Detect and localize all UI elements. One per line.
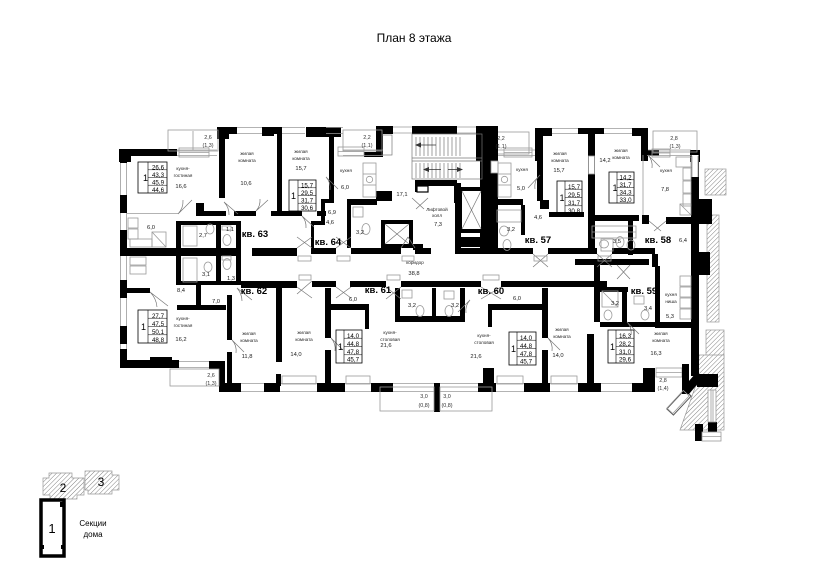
- svg-text:28,2: 28,2: [619, 341, 632, 348]
- svg-text:6,0: 6,0: [341, 185, 349, 191]
- svg-text:44,8: 44,8: [347, 341, 360, 348]
- svg-text:жилая: жилая: [294, 149, 308, 154]
- svg-text:(1,3): (1,3): [205, 381, 216, 387]
- svg-text:15,7: 15,7: [568, 184, 581, 191]
- svg-text:1,3: 1,3: [227, 276, 235, 282]
- svg-text:кв. 62: кв. 62: [241, 286, 267, 297]
- svg-text:29,6: 29,6: [619, 357, 632, 364]
- svg-text:2,7: 2,7: [199, 233, 207, 239]
- svg-text:6,0: 6,0: [513, 296, 521, 302]
- svg-text:14,2: 14,2: [599, 158, 610, 164]
- svg-text:8,4: 8,4: [177, 288, 186, 294]
- svg-text:43,3: 43,3: [152, 172, 165, 179]
- svg-text:3,2: 3,2: [451, 303, 459, 309]
- svg-text:2,8: 2,8: [670, 136, 678, 142]
- svg-text:комната: комната: [295, 337, 313, 342]
- svg-text:кухня: кухня: [340, 168, 352, 173]
- svg-text:(0,8): (0,8): [418, 403, 429, 409]
- svg-text:гостиная: гостиная: [174, 173, 193, 178]
- svg-text:6,0: 6,0: [147, 225, 155, 231]
- svg-text:Лифтовой: Лифтовой: [426, 206, 448, 212]
- svg-text:5,0: 5,0: [517, 186, 525, 192]
- svg-text:3,5: 3,5: [613, 239, 621, 245]
- svg-text:кв. 61: кв. 61: [365, 285, 392, 296]
- svg-text:2,2: 2,2: [497, 136, 505, 142]
- svg-text:(1,1): (1,1): [495, 144, 506, 150]
- svg-text:14,0: 14,0: [520, 335, 533, 342]
- svg-text:4,6: 4,6: [326, 220, 334, 226]
- svg-text:7,3: 7,3: [434, 222, 442, 228]
- svg-text:16,2: 16,2: [175, 337, 186, 343]
- svg-text:38,8: 38,8: [408, 271, 419, 277]
- svg-text:33,0: 33,0: [619, 197, 632, 204]
- svg-text:3,2: 3,2: [356, 230, 364, 236]
- svg-text:26,6: 26,6: [152, 165, 165, 172]
- svg-text:3: 3: [98, 475, 105, 489]
- svg-text:1: 1: [338, 342, 343, 352]
- svg-text:14,0: 14,0: [290, 352, 301, 358]
- svg-text:6,9: 6,9: [328, 210, 336, 216]
- svg-text:1: 1: [610, 342, 615, 352]
- svg-text:1: 1: [613, 183, 618, 193]
- svg-text:комната: комната: [238, 158, 256, 163]
- svg-text:5,3: 5,3: [666, 314, 674, 320]
- svg-text:7,8: 7,8: [661, 187, 669, 193]
- svg-text:31,7: 31,7: [619, 182, 632, 189]
- svg-text:17,1: 17,1: [396, 192, 407, 198]
- svg-text:жилая: жилая: [242, 331, 256, 336]
- svg-text:44,6: 44,6: [152, 187, 165, 194]
- svg-text:кухня-: кухня-: [176, 166, 190, 171]
- svg-text:29,5: 29,5: [568, 192, 581, 199]
- svg-text:14,0: 14,0: [347, 333, 360, 340]
- svg-text:дома: дома: [83, 530, 103, 539]
- svg-text:столовая: столовая: [474, 340, 494, 345]
- svg-text:кв. 57: кв. 57: [525, 235, 551, 246]
- svg-text:комната: комната: [652, 338, 670, 343]
- svg-text:2,6: 2,6: [204, 135, 212, 141]
- svg-text:(0,8): (0,8): [441, 403, 452, 409]
- svg-text:3,0: 3,0: [443, 394, 451, 400]
- svg-text:жилая: жилая: [240, 151, 254, 156]
- svg-text:3,0: 3,0: [420, 394, 428, 400]
- svg-text:жилая: жилая: [614, 148, 628, 153]
- svg-text:48,8: 48,8: [152, 337, 165, 344]
- svg-text:6,4: 6,4: [679, 238, 688, 244]
- svg-text:16,3: 16,3: [650, 351, 661, 357]
- svg-text:15,7: 15,7: [295, 166, 306, 172]
- svg-text:столовая: столовая: [380, 337, 400, 342]
- svg-text:жилая: жилая: [297, 330, 311, 335]
- svg-text:комната: комната: [612, 155, 630, 160]
- svg-text:(1,3): (1,3): [669, 144, 680, 150]
- svg-text:2,2: 2,2: [363, 135, 371, 141]
- svg-text:кв. 60: кв. 60: [478, 286, 504, 297]
- svg-text:3,1: 3,1: [202, 272, 210, 278]
- svg-text:кухня-: кухня-: [383, 330, 397, 335]
- svg-text:кв. 63: кв. 63: [242, 229, 268, 240]
- svg-text:коридор: коридор: [406, 260, 424, 265]
- svg-text:комната: комната: [551, 158, 569, 163]
- svg-text:2: 2: [60, 481, 67, 495]
- svg-text:План 8 этажа: План 8 этажа: [377, 31, 452, 45]
- svg-text:холл: холл: [432, 213, 442, 218]
- svg-text:27,7: 27,7: [152, 313, 165, 320]
- svg-text:3,2: 3,2: [507, 227, 515, 233]
- svg-text:жилая: жилая: [654, 331, 668, 336]
- svg-text:2,6: 2,6: [207, 373, 215, 379]
- svg-text:11,8: 11,8: [242, 354, 253, 360]
- svg-text:1: 1: [291, 191, 296, 201]
- svg-text:21,6: 21,6: [470, 354, 481, 360]
- svg-text:16,3: 16,3: [619, 333, 632, 340]
- svg-text:45,7: 45,7: [520, 359, 533, 366]
- svg-text:7,0: 7,0: [212, 299, 220, 305]
- svg-text:1: 1: [511, 344, 516, 354]
- svg-text:жилая: жилая: [553, 151, 567, 156]
- svg-text:жилая: жилая: [555, 327, 569, 332]
- svg-text:1: 1: [560, 193, 565, 203]
- svg-text:15,7: 15,7: [301, 183, 314, 190]
- svg-text:Секции: Секции: [79, 519, 106, 528]
- svg-text:1: 1: [143, 173, 148, 183]
- svg-text:30,6: 30,6: [301, 205, 314, 212]
- svg-text:ниша: ниша: [665, 299, 677, 304]
- svg-text:29,5: 29,5: [301, 190, 314, 197]
- svg-text:комната: комната: [553, 334, 571, 339]
- svg-text:кухня-: кухня-: [477, 333, 491, 338]
- svg-text:(1,3): (1,3): [202, 143, 213, 149]
- svg-text:44,8: 44,8: [520, 343, 533, 350]
- svg-text:гостиная: гостиная: [174, 323, 193, 328]
- svg-text:3,2: 3,2: [611, 301, 619, 307]
- svg-text:кухня: кухня: [660, 168, 672, 173]
- svg-text:16,6: 16,6: [175, 184, 186, 190]
- svg-text:1,1: 1,1: [226, 227, 234, 233]
- svg-text:10,6: 10,6: [240, 181, 251, 187]
- svg-text:2,8: 2,8: [659, 378, 667, 384]
- svg-text:кухня: кухня: [516, 167, 528, 172]
- svg-text:кв. 59: кв. 59: [631, 286, 657, 297]
- svg-text:14,0: 14,0: [552, 353, 563, 359]
- svg-text:(1,4): (1,4): [657, 386, 668, 392]
- svg-text:кухня-: кухня-: [176, 316, 190, 321]
- svg-text:1: 1: [141, 322, 146, 332]
- svg-text:комната: комната: [240, 338, 258, 343]
- svg-text:комната: комната: [292, 156, 310, 161]
- svg-text:6,0: 6,0: [349, 297, 357, 303]
- svg-text:кв. 64: кв. 64: [315, 237, 342, 248]
- svg-text:3,2: 3,2: [408, 303, 416, 309]
- svg-text:1: 1: [48, 521, 55, 536]
- svg-text:30,8: 30,8: [568, 208, 581, 215]
- svg-text:47,5: 47,5: [152, 321, 165, 328]
- svg-text:(1,1): (1,1): [361, 143, 372, 149]
- svg-text:21,6: 21,6: [380, 343, 391, 349]
- svg-text:15,7: 15,7: [553, 168, 564, 174]
- svg-text:14,2: 14,2: [619, 175, 632, 182]
- svg-text:45,7: 45,7: [347, 357, 360, 364]
- svg-text:кухня: кухня: [665, 292, 677, 297]
- svg-text:3,4: 3,4: [644, 306, 653, 312]
- svg-text:4,6: 4,6: [534, 215, 542, 221]
- svg-text:кв. 58: кв. 58: [645, 235, 671, 246]
